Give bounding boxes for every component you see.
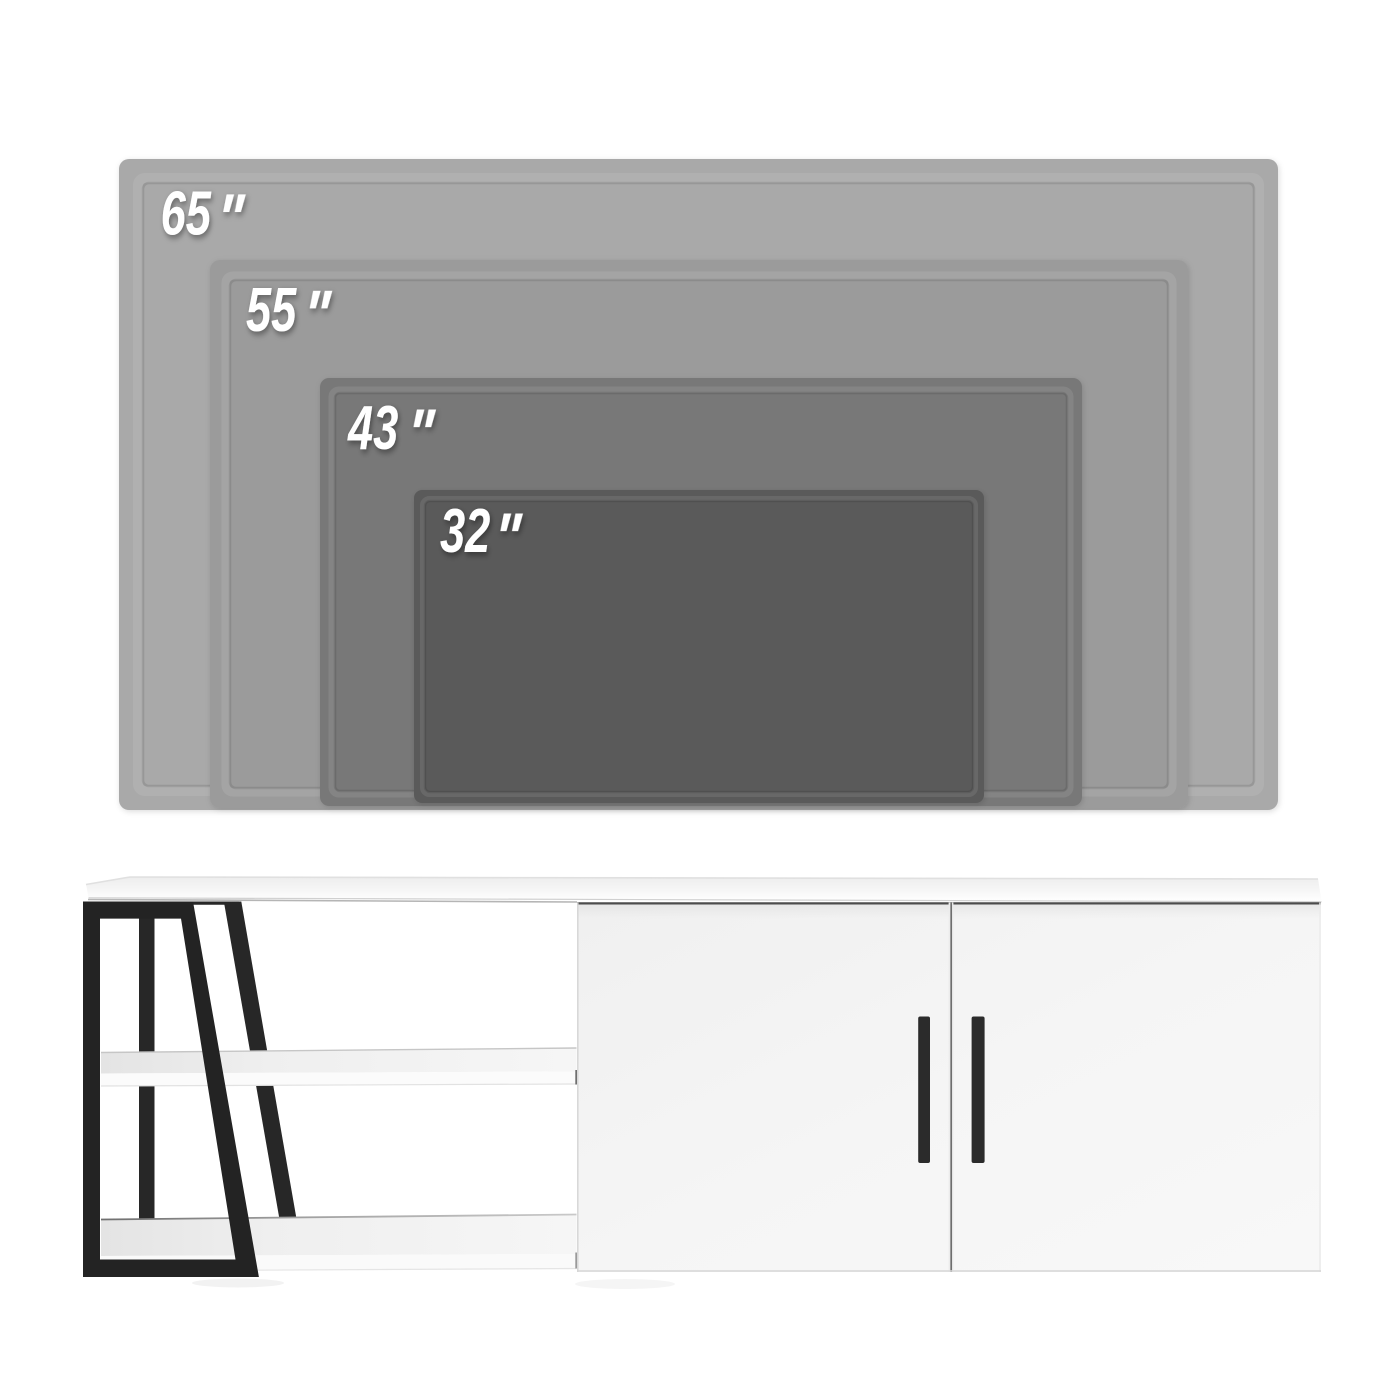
svg-text:55: 55: [246, 275, 297, 345]
svg-text:32: 32: [440, 496, 490, 566]
svg-text:43: 43: [347, 393, 398, 463]
svg-text:65: 65: [161, 179, 212, 249]
